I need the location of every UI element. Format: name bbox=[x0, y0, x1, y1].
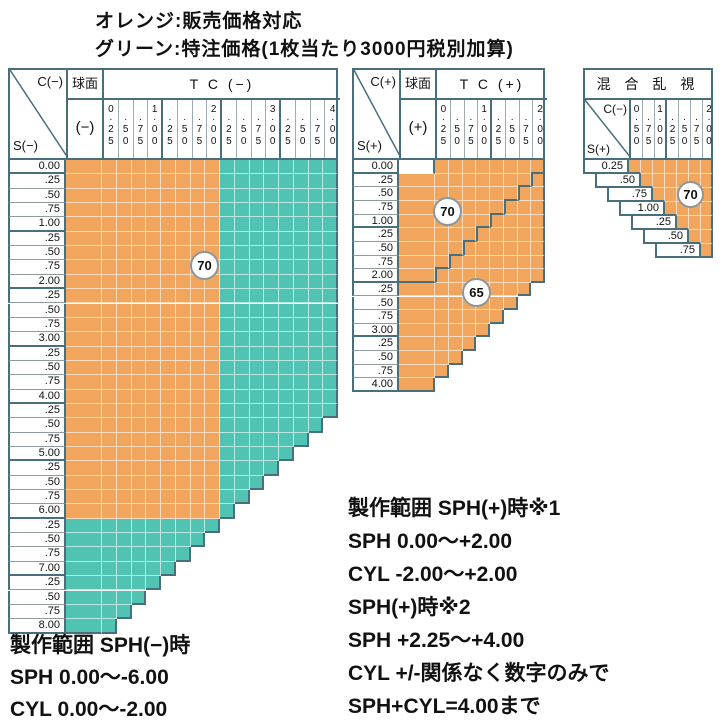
price-cell bbox=[132, 404, 147, 418]
price-cell bbox=[235, 174, 250, 188]
price-cell bbox=[399, 228, 435, 242]
price-cell bbox=[102, 490, 117, 504]
col-dec2: 5 bbox=[667, 136, 678, 148]
price-cell bbox=[235, 289, 250, 303]
price-cell bbox=[504, 228, 518, 242]
price-cell bbox=[279, 304, 294, 318]
price-cell bbox=[653, 188, 665, 202]
price-cell bbox=[399, 215, 435, 229]
price-cell bbox=[294, 304, 309, 318]
price-cell bbox=[309, 174, 324, 188]
price-cell bbox=[102, 332, 117, 346]
price-cell bbox=[279, 361, 294, 375]
price-cell bbox=[504, 256, 518, 270]
price-cell bbox=[518, 215, 532, 229]
price-cell bbox=[146, 361, 161, 375]
price-cell bbox=[146, 375, 161, 389]
price-cell bbox=[102, 461, 117, 475]
price-cell bbox=[191, 347, 206, 361]
diameter-badge: 65 bbox=[462, 278, 491, 307]
price-cell bbox=[191, 461, 206, 475]
price-cell bbox=[66, 318, 102, 332]
price-cell bbox=[518, 242, 532, 256]
price-cell bbox=[323, 361, 338, 375]
col-dot: · bbox=[679, 116, 690, 124]
price-cell bbox=[205, 461, 220, 475]
price-cell bbox=[132, 347, 147, 361]
price-cell bbox=[490, 187, 504, 201]
price-cell bbox=[146, 461, 161, 475]
plus-row-label: .50 bbox=[352, 187, 399, 201]
col-dec1: 5 bbox=[178, 124, 192, 136]
tc-col-header: ·25 bbox=[281, 100, 296, 158]
price-cell bbox=[294, 347, 309, 361]
plus-row-label: 3.00 bbox=[352, 324, 399, 338]
price-cell bbox=[176, 189, 191, 203]
price-cell bbox=[504, 187, 518, 201]
price-cell bbox=[264, 232, 279, 246]
price-cell bbox=[117, 390, 132, 404]
price-cell bbox=[264, 361, 279, 375]
price-cell bbox=[66, 189, 102, 203]
price-cell bbox=[132, 289, 147, 303]
price-cell bbox=[102, 375, 117, 389]
price-cell bbox=[161, 533, 176, 547]
price-cell bbox=[102, 275, 117, 289]
minus-row-label: .50 bbox=[8, 476, 66, 490]
price-cell bbox=[102, 476, 117, 490]
price-cell bbox=[220, 217, 235, 231]
col-dec1: 2 bbox=[281, 124, 295, 136]
price-cell bbox=[205, 433, 220, 447]
plus-row-label: .50 bbox=[352, 351, 399, 365]
price-cell bbox=[132, 232, 147, 246]
price-cell bbox=[435, 174, 449, 188]
price-cell bbox=[435, 310, 449, 324]
price-cell bbox=[264, 447, 279, 461]
price-cell bbox=[102, 390, 117, 404]
col-dec1: 2 bbox=[163, 124, 177, 136]
price-cell bbox=[449, 351, 463, 365]
tc-col-header: ·75 bbox=[193, 100, 208, 158]
price-cell bbox=[449, 256, 463, 270]
price-cell bbox=[399, 351, 435, 365]
tc-col-header: ·25 bbox=[163, 100, 178, 158]
price-cell bbox=[176, 361, 191, 375]
price-cell bbox=[279, 433, 294, 447]
price-cell bbox=[146, 160, 161, 174]
price-cell bbox=[191, 404, 206, 418]
plus-row-label: 1.00 bbox=[352, 215, 399, 229]
price-cell bbox=[132, 533, 147, 547]
price-cell bbox=[66, 275, 102, 289]
col-dec1: 2 bbox=[437, 124, 450, 136]
price-cell bbox=[220, 404, 235, 418]
price-cell bbox=[323, 203, 338, 217]
price-cell bbox=[294, 375, 309, 389]
price-cell bbox=[309, 260, 324, 274]
price-cell bbox=[463, 187, 477, 201]
price-cell bbox=[132, 174, 147, 188]
price-cell bbox=[176, 232, 191, 246]
price-cell bbox=[220, 347, 235, 361]
col-dot: · bbox=[703, 116, 715, 124]
price-cell bbox=[490, 269, 504, 283]
price-cell bbox=[294, 217, 309, 231]
minus-row-label: .75 bbox=[8, 547, 66, 561]
price-cell bbox=[449, 310, 463, 324]
price-cell bbox=[205, 160, 220, 174]
price-cell bbox=[66, 461, 102, 475]
price-cell bbox=[220, 447, 235, 461]
price-cell bbox=[463, 256, 477, 270]
price-cell bbox=[279, 375, 294, 389]
col-dec2: 5 bbox=[492, 136, 505, 148]
price-cell bbox=[449, 297, 463, 311]
price-cell bbox=[476, 310, 490, 324]
price-cell bbox=[518, 201, 532, 215]
price-cell bbox=[504, 242, 518, 256]
price-cell bbox=[689, 230, 701, 244]
mixed-row-label: .75 bbox=[607, 188, 653, 202]
price-cell bbox=[102, 174, 117, 188]
tc-col-header: ·75 bbox=[520, 100, 534, 158]
plus-row-label: .75 bbox=[352, 256, 399, 270]
price-cell bbox=[435, 337, 449, 351]
price-cell bbox=[279, 260, 294, 274]
price-cell bbox=[66, 232, 102, 246]
price-cell bbox=[399, 365, 435, 379]
price-cell bbox=[117, 591, 132, 605]
price-cell bbox=[117, 203, 132, 217]
price-cell bbox=[132, 433, 147, 447]
price-cell bbox=[117, 490, 132, 504]
minus-row-label: 4.00 bbox=[8, 390, 66, 404]
price-cell bbox=[279, 289, 294, 303]
price-cell bbox=[102, 260, 117, 274]
price-cell bbox=[449, 228, 463, 242]
price-cell bbox=[176, 332, 191, 346]
col-dec2: 5 bbox=[465, 136, 478, 148]
price-cell bbox=[176, 519, 191, 533]
price-cell bbox=[435, 324, 449, 338]
note-line: SPH 0.00〜-6.00 bbox=[10, 662, 190, 694]
price-cell bbox=[490, 174, 504, 188]
price-cell bbox=[399, 324, 435, 338]
note-line: CYL +/-関係なく数字のみで bbox=[348, 657, 610, 690]
price-cell bbox=[235, 304, 250, 318]
price-cell bbox=[476, 228, 490, 242]
price-cell bbox=[220, 504, 235, 518]
tc-col-header: ·75 bbox=[465, 100, 479, 158]
col-dot: · bbox=[520, 116, 533, 124]
price-cell bbox=[518, 187, 532, 201]
price-cell bbox=[220, 418, 235, 432]
col-dec2: 5 bbox=[104, 136, 118, 148]
price-cell bbox=[490, 310, 504, 324]
col-dec1: 5 bbox=[296, 124, 310, 136]
price-cell bbox=[102, 533, 117, 547]
price-cell bbox=[132, 160, 147, 174]
price-cell bbox=[161, 390, 176, 404]
sphere-sign-cell: (+) bbox=[401, 100, 437, 158]
minus-row-label: 2.00 bbox=[8, 275, 66, 289]
price-cell bbox=[191, 332, 206, 346]
col-dec1: 2 bbox=[104, 124, 118, 136]
price-cell bbox=[146, 490, 161, 504]
price-cell bbox=[117, 332, 132, 346]
col-dec2: 0 bbox=[506, 136, 519, 148]
price-cell bbox=[132, 461, 147, 475]
tc-col-header: ·50 bbox=[451, 100, 465, 158]
price-cell bbox=[449, 160, 463, 174]
price-cell bbox=[294, 160, 309, 174]
col-dot: · bbox=[643, 116, 654, 124]
price-cell bbox=[102, 576, 117, 590]
price-cell bbox=[235, 490, 250, 504]
price-cell bbox=[641, 160, 653, 174]
price-cell bbox=[176, 375, 191, 389]
diameter-badge: 70 bbox=[190, 251, 219, 280]
price-cell bbox=[66, 260, 102, 274]
price-cell bbox=[176, 418, 191, 432]
col-dec1: 5 bbox=[451, 124, 464, 136]
price-cell bbox=[132, 447, 147, 461]
col-dec1: 7 bbox=[311, 124, 325, 136]
col-dec1: 0 bbox=[655, 124, 665, 136]
price-cell bbox=[518, 269, 532, 283]
price-cell bbox=[132, 390, 147, 404]
plus-row-label: .25 bbox=[352, 337, 399, 351]
price-cell bbox=[146, 203, 161, 217]
price-cell bbox=[641, 174, 653, 188]
price-cell bbox=[250, 260, 265, 274]
note-title: 製作範囲 SPH(−)時 bbox=[10, 630, 190, 662]
price-cell bbox=[102, 361, 117, 375]
price-cell bbox=[504, 160, 518, 174]
price-cell bbox=[323, 404, 338, 418]
col-dec2: 0 bbox=[237, 136, 251, 148]
col-dot: · bbox=[148, 116, 161, 124]
col-dec2: 0 bbox=[266, 136, 279, 148]
col-dot: · bbox=[266, 116, 279, 124]
minus-row-label: .25 bbox=[8, 519, 66, 533]
price-cell bbox=[176, 246, 191, 260]
price-cell bbox=[399, 283, 435, 297]
price-cell bbox=[146, 519, 161, 533]
col-dot: · bbox=[207, 116, 220, 124]
price-cell bbox=[504, 283, 518, 297]
price-cell bbox=[463, 215, 477, 229]
price-cell bbox=[294, 260, 309, 274]
price-cell bbox=[66, 504, 102, 518]
price-cell bbox=[205, 232, 220, 246]
price-cell bbox=[463, 174, 477, 188]
col-dec2: 5 bbox=[643, 136, 654, 148]
price-cell bbox=[117, 404, 132, 418]
tc-col-header: 1·00 bbox=[148, 100, 163, 158]
price-cell bbox=[264, 189, 279, 203]
price-cell bbox=[294, 404, 309, 418]
price-cell bbox=[309, 332, 324, 346]
price-cell bbox=[279, 217, 294, 231]
price-cell bbox=[146, 533, 161, 547]
price-cell bbox=[264, 160, 279, 174]
col-dec2: 5 bbox=[193, 136, 207, 148]
price-cell bbox=[309, 232, 324, 246]
price-cell bbox=[279, 232, 294, 246]
price-cell bbox=[665, 160, 677, 174]
price-cell bbox=[102, 217, 117, 231]
price-cell bbox=[518, 160, 532, 174]
price-cell bbox=[399, 242, 435, 256]
col-dec1: 5 bbox=[506, 124, 519, 136]
price-cell bbox=[161, 260, 176, 274]
price-cell bbox=[701, 244, 713, 258]
price-cell bbox=[161, 347, 176, 361]
price-cell bbox=[102, 404, 117, 418]
legend-green: グリーン:特注価格(1枚当たり3000円税別加算) bbox=[95, 34, 514, 61]
price-cell bbox=[504, 269, 518, 283]
price-cell bbox=[399, 256, 435, 270]
price-cell bbox=[66, 591, 102, 605]
price-cell bbox=[191, 160, 206, 174]
col-dot: · bbox=[691, 116, 702, 124]
price-cell bbox=[235, 461, 250, 475]
price-cell bbox=[146, 504, 161, 518]
mixed-row-label: .50 bbox=[595, 174, 641, 188]
price-cell bbox=[132, 217, 147, 231]
price-cell bbox=[677, 216, 689, 230]
price-cell bbox=[66, 576, 102, 590]
price-cell bbox=[531, 256, 545, 270]
price-cell bbox=[205, 217, 220, 231]
price-cell bbox=[294, 289, 309, 303]
price-cell bbox=[279, 275, 294, 289]
price-cell bbox=[294, 246, 309, 260]
price-cell bbox=[323, 246, 338, 260]
price-cell bbox=[476, 187, 490, 201]
price-cell bbox=[250, 318, 265, 332]
minus-row-label: .75 bbox=[8, 605, 66, 619]
price-cell bbox=[279, 189, 294, 203]
price-cell bbox=[309, 189, 324, 203]
col-dec2: 0 bbox=[703, 136, 715, 148]
price-cell bbox=[205, 447, 220, 461]
price-cell bbox=[689, 216, 701, 230]
price-cell bbox=[66, 332, 102, 346]
price-cell bbox=[66, 217, 102, 231]
tc-col-header: 2·00 bbox=[207, 100, 222, 158]
price-cell bbox=[132, 591, 147, 605]
price-cell bbox=[531, 242, 545, 256]
price-cell bbox=[235, 275, 250, 289]
price-cell bbox=[463, 242, 477, 256]
tc-col-header: ·50 bbox=[237, 100, 252, 158]
price-cell bbox=[264, 217, 279, 231]
price-cell bbox=[66, 433, 102, 447]
col-dec2: 5 bbox=[691, 136, 702, 148]
price-cell bbox=[146, 304, 161, 318]
price-cell bbox=[117, 160, 132, 174]
tc-col-header: ·75 bbox=[643, 100, 655, 158]
mixed-row-label: .75 bbox=[655, 244, 701, 258]
corner-row-label: S(+) bbox=[587, 142, 610, 156]
price-cell bbox=[250, 447, 265, 461]
price-cell bbox=[235, 375, 250, 389]
price-cell bbox=[117, 605, 132, 619]
price-cell bbox=[250, 304, 265, 318]
price-cell bbox=[323, 304, 338, 318]
price-cell bbox=[117, 217, 132, 231]
price-cell bbox=[102, 189, 117, 203]
price-cell bbox=[176, 390, 191, 404]
price-cell bbox=[205, 519, 220, 533]
price-cell bbox=[132, 504, 147, 518]
price-cell bbox=[309, 361, 324, 375]
col-dec2: 5 bbox=[163, 136, 177, 148]
mixed-row-label: .25 bbox=[631, 216, 677, 230]
price-cell bbox=[220, 361, 235, 375]
price-cell bbox=[191, 318, 206, 332]
col-dec1: 0 bbox=[207, 124, 220, 136]
minus-row-label: .75 bbox=[8, 375, 66, 389]
price-cell bbox=[476, 242, 490, 256]
price-cell bbox=[191, 533, 206, 547]
tc-col-header: ·75 bbox=[134, 100, 149, 158]
price-cell bbox=[117, 189, 132, 203]
price-cell bbox=[399, 187, 435, 201]
col-dec1: 7 bbox=[252, 124, 266, 136]
price-cell bbox=[220, 289, 235, 303]
price-cell bbox=[176, 476, 191, 490]
price-cell bbox=[146, 447, 161, 461]
col-dot: · bbox=[506, 116, 519, 124]
price-cell bbox=[435, 242, 449, 256]
price-cell bbox=[264, 318, 279, 332]
col-dec1: 2 bbox=[492, 124, 505, 136]
col-dec2: 0 bbox=[679, 136, 690, 148]
price-cell bbox=[220, 318, 235, 332]
col-dot: · bbox=[631, 116, 642, 124]
price-cell bbox=[250, 390, 265, 404]
col-dec2: 0 bbox=[296, 136, 310, 148]
col-dot: · bbox=[533, 116, 547, 124]
price-cell bbox=[463, 201, 477, 215]
price-cell bbox=[235, 447, 250, 461]
price-cell bbox=[205, 332, 220, 346]
price-cell bbox=[205, 404, 220, 418]
tc-col-header: ·25 bbox=[492, 100, 506, 158]
col-dec2: 5 bbox=[252, 136, 266, 148]
price-cell bbox=[161, 304, 176, 318]
corner-col-label: C(−) bbox=[603, 102, 627, 116]
price-cell bbox=[250, 461, 265, 475]
price-cell bbox=[102, 246, 117, 260]
price-cell bbox=[117, 232, 132, 246]
price-cell bbox=[490, 215, 504, 229]
price-cell bbox=[279, 404, 294, 418]
price-cell bbox=[66, 476, 102, 490]
price-cell bbox=[264, 275, 279, 289]
price-cell bbox=[117, 418, 132, 432]
col-dec1: 0 bbox=[478, 124, 490, 136]
col-dec1: 5 bbox=[119, 124, 133, 136]
price-cell bbox=[518, 283, 532, 297]
price-cell bbox=[146, 547, 161, 561]
price-cell bbox=[701, 202, 713, 216]
col-dec2: 0 bbox=[655, 136, 665, 148]
